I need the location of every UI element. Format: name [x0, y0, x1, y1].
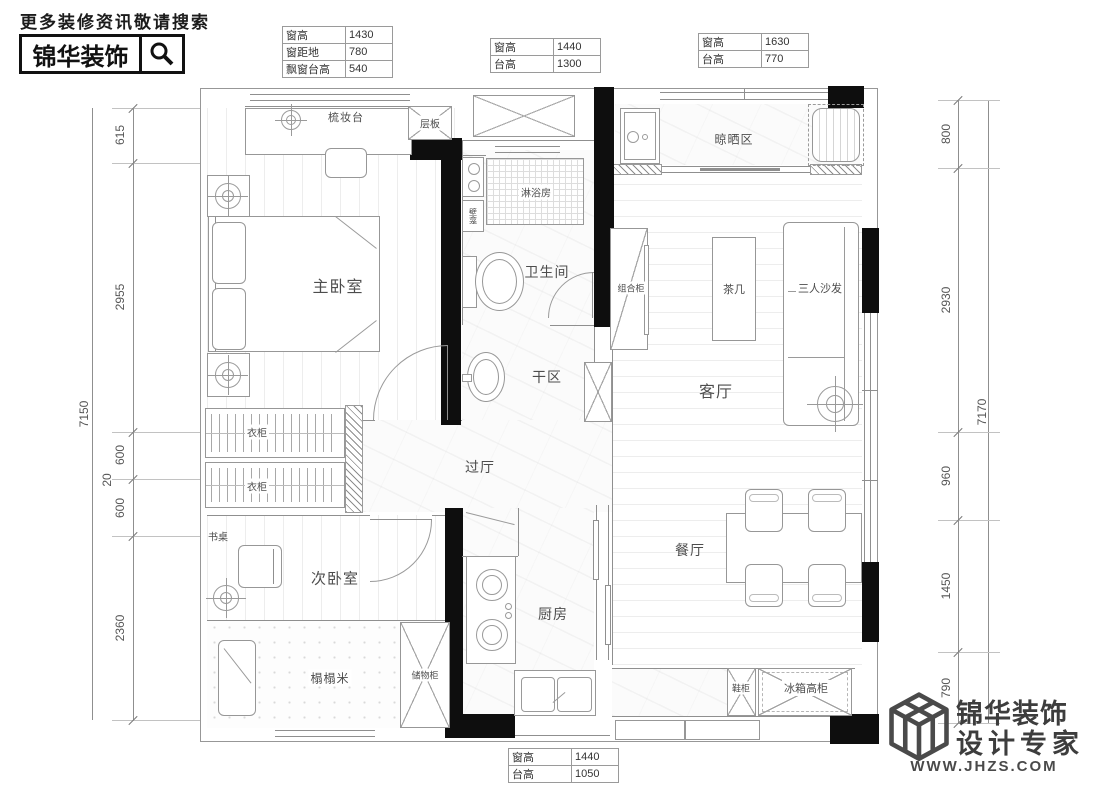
label-hallway: 过厅: [465, 457, 495, 477]
window-mullion: [744, 89, 745, 100]
door-leaf: [592, 272, 593, 318]
dim-table-topright: 窗高1630 台高770: [698, 33, 809, 68]
cell: 台高: [699, 51, 762, 68]
dim-label-960: 960: [939, 466, 953, 486]
dim-table-topleft: 窗高1430 窗距地780 飘窗台高540: [282, 26, 393, 78]
window-mullion: [862, 480, 878, 481]
pipe-shaft: [584, 362, 612, 422]
pillow: [212, 222, 246, 284]
cell: 窗高: [509, 749, 572, 766]
window-line: [495, 146, 560, 147]
dining-chair: [808, 564, 846, 607]
bath-cabinet: [462, 157, 484, 197]
cell: 台高: [509, 766, 572, 783]
dim-ext: [938, 652, 1000, 653]
label-dining-room: 餐厅: [675, 540, 705, 560]
label-shelf: 层板: [418, 116, 442, 131]
wall-line: [462, 155, 486, 156]
label-storage-cabinet: 储物柜: [409, 669, 440, 682]
wall-line: [612, 716, 830, 717]
counter-line: [518, 508, 519, 556]
label-living-room: 客厅: [699, 378, 733, 402]
label-dresser: 梳妆台: [328, 109, 364, 125]
window-mullion: [862, 390, 878, 391]
label-wardrobe-a: 衣柜: [245, 425, 269, 440]
dim-label-615: 615: [113, 125, 127, 145]
balcony-unit: [812, 108, 860, 162]
dining-chair: [808, 489, 846, 532]
dim-table-topmid: 窗高1440 台高1300: [490, 38, 601, 73]
label-niche: 壁龛: [468, 208, 479, 224]
wall-line: [594, 325, 595, 365]
cell: 1440: [554, 39, 601, 56]
cell: 1300: [554, 56, 601, 73]
light-symbol: [206, 578, 246, 618]
label-shower: 淋浴房: [519, 185, 553, 200]
light-symbol: [208, 355, 248, 395]
dim-label-7150: 7150: [77, 401, 91, 428]
toilet-bowl-inner: [482, 259, 517, 304]
window-line: [864, 312, 865, 562]
label-kitchen: 厨房: [538, 604, 568, 624]
dim-label-1450: 1450: [939, 573, 953, 600]
label-bathroom: 卫生间: [525, 262, 570, 282]
window-line: [250, 100, 410, 101]
label-sofa: 三人沙发: [796, 280, 844, 296]
search-icon: [142, 37, 182, 71]
sliding-door: [700, 168, 780, 171]
cell: 540: [346, 61, 393, 78]
window-line: [515, 735, 610, 736]
cell: 飘窗台高: [283, 61, 346, 78]
tatami-pillow: [218, 640, 256, 716]
dining-chair: [745, 564, 783, 607]
light-symbol: [208, 176, 248, 216]
desk-chair-line: [273, 549, 274, 584]
dim-ext: [112, 163, 200, 164]
hatched-wall: [345, 405, 363, 513]
window-line: [495, 152, 560, 153]
dim-label-2360: 2360: [113, 615, 127, 642]
wall-black: [862, 562, 879, 642]
dim-ext: [112, 108, 200, 109]
threshold: [685, 720, 760, 740]
dim-label-2955: 2955: [113, 284, 127, 311]
dim-ext: [938, 100, 1000, 101]
wall-black: [830, 714, 879, 744]
dim-label-7170: 7170: [975, 399, 989, 426]
door-leaf: [447, 345, 448, 420]
label-shoe-cabinet: 鞋柜: [730, 682, 752, 695]
dining-chair: [745, 489, 783, 532]
cell: 窗高: [283, 27, 346, 44]
dim-line: [958, 100, 959, 723]
cell: 窗高: [699, 34, 762, 51]
dim-ext: [112, 479, 200, 480]
floorplan-canvas: 更多装修资讯敬请搜索 锦华装饰 窗高1430 窗距地780 飘窗台高540 窗高…: [0, 0, 1100, 800]
kitchen-sink: [514, 670, 596, 716]
wardrobe-box: [205, 408, 345, 458]
wall-black: [862, 228, 879, 313]
door-leaf: [370, 519, 432, 520]
wall-line: [550, 325, 594, 326]
threshold: [615, 720, 685, 740]
dim-ext: [112, 432, 200, 433]
label-tv-cabinet: 组合柜: [615, 282, 646, 295]
window-line: [275, 736, 375, 737]
wardrobe-box: [205, 462, 345, 508]
dim-table-bottom: 窗高1440 台高1050: [508, 748, 619, 783]
cell: 1050: [572, 766, 619, 783]
stove: [466, 556, 516, 664]
label-desk: 书桌: [208, 529, 228, 544]
sliding-door-panel: [593, 520, 599, 580]
dim-label-2930: 2930: [939, 287, 953, 314]
wall-line: [207, 515, 370, 516]
label-second-bedroom: 次卧室: [311, 568, 359, 589]
header-tagline: 更多装修资讯敬请搜索: [20, 8, 210, 33]
dim-label-600b: 600: [113, 498, 127, 518]
dry-sink-inner: [473, 359, 499, 395]
footer-slogan: 设计专家: [956, 722, 1084, 761]
label-tea-table: 茶几: [721, 281, 747, 297]
window-line: [870, 312, 871, 562]
label-fridge-cabinet: 冰箱高柜: [782, 680, 830, 696]
wall-line: [462, 140, 594, 141]
dim-ext: [112, 720, 200, 721]
hatched-wall: [612, 164, 662, 175]
label-tatami: 榻榻米: [308, 670, 351, 687]
faucet: [462, 374, 472, 382]
window-sill: [245, 106, 412, 107]
wall-line: [207, 620, 450, 621]
cell: 780: [346, 44, 393, 61]
dim-ext: [938, 520, 1000, 521]
dim-ext: [938, 432, 1000, 433]
brand-logo-box: 锦华装饰: [19, 34, 185, 74]
label-wardrobe-b: 衣柜: [245, 479, 269, 494]
cell: 1440: [572, 749, 619, 766]
label-dry-area: 干区: [532, 367, 562, 387]
label-master-bedroom: 主卧室: [312, 273, 363, 297]
washing-machine: [620, 108, 660, 164]
pillow: [212, 288, 246, 350]
cell: 台高: [491, 56, 554, 73]
dim-ext: [938, 168, 1000, 169]
cell: 1430: [346, 27, 393, 44]
cell: 窗距地: [283, 44, 346, 61]
footer-url: WWW.JHZS.COM: [884, 758, 1084, 775]
dim-line: [133, 108, 134, 720]
window-line: [275, 730, 375, 731]
dim-ext: [112, 536, 200, 537]
sliding-door-panel: [605, 585, 611, 645]
dresser-stool: [325, 148, 367, 178]
wall-black: [445, 714, 515, 738]
light-symbol: [807, 376, 863, 432]
window-line: [250, 94, 410, 95]
brand-logo-text: 锦华装饰: [22, 37, 139, 72]
dim-line: [92, 108, 93, 720]
cell: 1630: [762, 34, 809, 51]
equipment-platform: [473, 95, 575, 137]
dim-label-600a: 600: [113, 445, 127, 465]
label-drying-area: 晾晒区: [714, 131, 753, 148]
dim-label-800: 800: [939, 124, 953, 144]
dim-label-20: 20: [100, 473, 114, 486]
cell: 770: [762, 51, 809, 68]
cell: 窗高: [491, 39, 554, 56]
light-symbol: [275, 104, 307, 136]
